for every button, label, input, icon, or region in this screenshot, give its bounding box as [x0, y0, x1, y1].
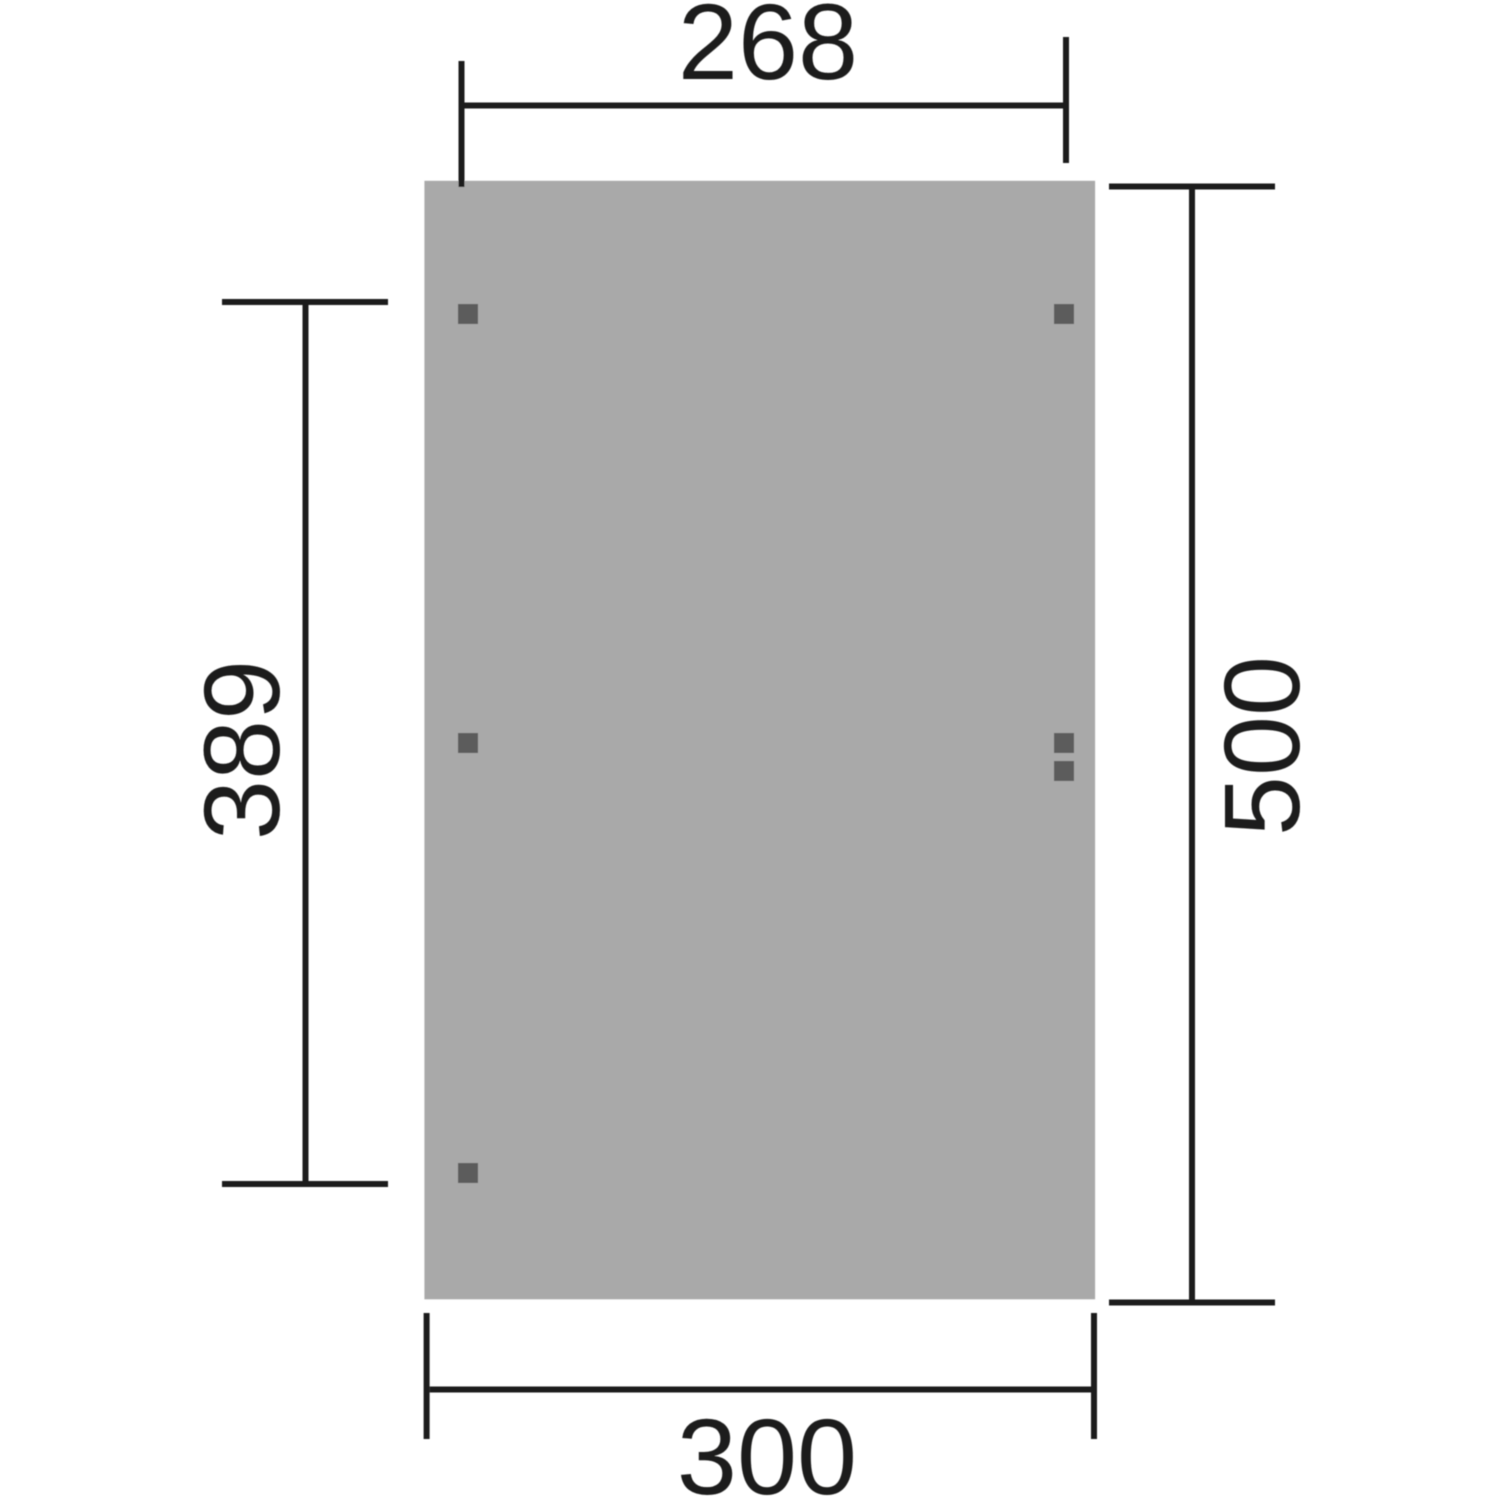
svg-text:389: 389: [181, 660, 302, 840]
svg-text:500: 500: [1201, 656, 1322, 836]
svg-text:268: 268: [678, 0, 858, 102]
svg-text:300: 300: [677, 1396, 857, 1500]
